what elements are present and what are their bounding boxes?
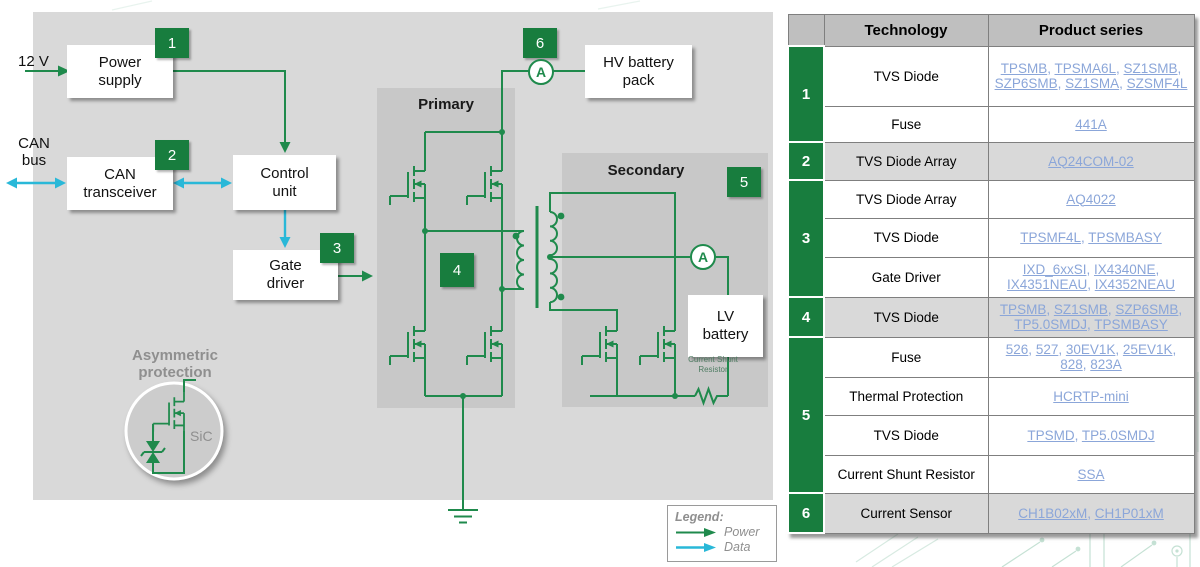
product-link[interactable]: CH1P01xM: [1095, 506, 1164, 521]
corner-header-cell: [788, 15, 824, 47]
product-table: Technology Product series 1TVS DiodeTPSM…: [787, 14, 1195, 534]
product-series-cell: AQ24COM-02: [988, 142, 1194, 180]
product-link[interactable]: TPSMD: [1027, 428, 1074, 443]
product-link[interactable]: IX4351NEAU: [1007, 277, 1087, 292]
can-bus-line: [6, 178, 66, 189]
product-series-cell: SSA: [988, 455, 1194, 493]
product-link[interactable]: SZ1SMB: [1054, 302, 1108, 317]
legend-power-label: Power: [724, 525, 759, 539]
badge-5: 5: [727, 167, 761, 197]
gate-drive-arrow: [338, 271, 373, 282]
technology-header: Technology: [824, 15, 988, 47]
product-series-header: Product series: [988, 15, 1194, 47]
table-row: 5Fuse526, 527, 30EV1K, 25EV1K, 828, 823A: [788, 337, 1194, 377]
table-row: 3TVS Diode ArrayAQ4022: [788, 180, 1194, 218]
hv-battery-box: HV battery pack: [585, 45, 692, 98]
power-line: [173, 71, 291, 153]
product-link[interactable]: 823A: [1090, 357, 1122, 372]
table-row: 1TVS DiodeTPSMB, TPSMA6L, SZ1SMB, SZP6SM…: [788, 46, 1194, 106]
data-arrow-icon: [674, 542, 718, 553]
table-row: TVS DiodeTPSMF4L, TPSMBASY: [788, 218, 1194, 257]
supply-voltage-label: 12 V: [18, 53, 49, 70]
primary-bridge: [390, 132, 502, 523]
product-link[interactable]: SZP6SMB: [995, 76, 1058, 91]
product-link[interactable]: TPSMB: [1000, 302, 1047, 317]
sic-label: SiC: [190, 428, 213, 444]
product-link[interactable]: 25EV1K: [1123, 342, 1173, 357]
product-series-cell: HCRTP-mini: [988, 377, 1194, 415]
product-series-cell: TPSMB, SZ1SMB, SZP6SMB, TP5.0SMDJ, TPSMB…: [988, 297, 1194, 337]
product-link[interactable]: SZ1SMB: [1124, 61, 1178, 76]
product-link[interactable]: CH1B02xM: [1018, 506, 1087, 521]
product-series-cell: TPSMD, TP5.0SMDJ: [988, 415, 1194, 455]
control-unit-box: Control unit: [233, 155, 336, 210]
legend-data-row: Data: [674, 540, 776, 554]
product-series-cell: TPSMB, TPSMA6L, SZ1SMB, SZP6SMB, SZ1SMA,…: [988, 46, 1194, 106]
product-link[interactable]: 828: [1060, 357, 1083, 372]
table-row: 2TVS Diode ArrayAQ24COM-02: [788, 142, 1194, 180]
technology-cell: Fuse: [824, 337, 988, 377]
secondary-label: Secondary: [576, 162, 716, 179]
table-body: 1TVS DiodeTPSMB, TPSMA6L, SZ1SMB, SZP6SM…: [788, 46, 1194, 533]
current-sensor-lv: A: [690, 244, 716, 270]
technology-cell: TVS Diode Array: [824, 142, 988, 180]
product-link[interactable]: IX4352NEAU: [1095, 277, 1175, 292]
badge-2: 2: [155, 140, 189, 170]
legend-power-row: Power: [674, 525, 776, 539]
technology-cell: Current Sensor: [824, 493, 988, 533]
technology-cell: TVS Diode: [824, 415, 988, 455]
current-shunt-label: Current Shunt Resistor: [686, 355, 740, 375]
product-link[interactable]: IXD_6xxSI: [1023, 262, 1087, 277]
badge-6: 6: [523, 28, 557, 58]
table-row: 4TVS DiodeTPSMB, SZ1SMB, SZP6SMB, TP5.0S…: [788, 297, 1194, 337]
technology-cell: TVS Diode Array: [824, 180, 988, 218]
product-link[interactable]: AQ4022: [1066, 192, 1116, 207]
product-series-cell: IXD_6xxSI, IX4340NE, IX4351NEAU, IX4352N…: [988, 257, 1194, 297]
asymmetric-protection-label: Asymmetric protection: [116, 347, 234, 382]
legend-title: Legend:: [675, 510, 776, 524]
page: 12 V CAN bus Power supply CAN transceive…: [0, 0, 1200, 567]
group-number-cell: 6: [788, 493, 824, 533]
product-link[interactable]: TPSMBASY: [1088, 230, 1162, 245]
technology-cell: Thermal Protection: [824, 377, 988, 415]
product-link[interactable]: TP5.0SMDJ: [1082, 428, 1155, 443]
product-link[interactable]: HCRTP-mini: [1053, 389, 1129, 404]
shunt-resistor-symbol: [695, 389, 728, 403]
product-series-cell: CH1B02xM, CH1P01xM: [988, 493, 1194, 533]
product-series-cell: AQ4022: [988, 180, 1194, 218]
product-link[interactable]: 441A: [1075, 117, 1107, 132]
table-row: Thermal ProtectionHCRTP-mini: [788, 377, 1194, 415]
product-link[interactable]: SSA: [1077, 467, 1104, 482]
badge-1: 1: [155, 28, 189, 58]
product-series-cell: TPSMF4L, TPSMBASY: [988, 218, 1194, 257]
legend-data-label: Data: [724, 540, 750, 554]
can-control-line: [173, 178, 232, 189]
power-arrow-icon: [674, 527, 718, 538]
product-link[interactable]: TPSMA6L: [1054, 61, 1116, 76]
table-row: 6Current SensorCH1B02xM, CH1P01xM: [788, 493, 1194, 533]
badge-3: 3: [320, 233, 354, 263]
current-sensor-hv: A: [528, 59, 554, 85]
lv-battery-box: LV battery: [688, 295, 763, 357]
group-number-cell: 2: [788, 142, 824, 180]
group-number-cell: 5: [788, 337, 824, 493]
control-gate-line: [280, 210, 291, 248]
table-row: Current Shunt ResistorSSA: [788, 455, 1194, 493]
product-link[interactable]: 526: [1006, 342, 1029, 357]
can-bus-label: CAN bus: [10, 135, 58, 170]
technology-cell: TVS Diode: [824, 297, 988, 337]
table-header-row: Technology Product series: [788, 15, 1194, 47]
technology-cell: Current Shunt Resistor: [824, 455, 988, 493]
product-link[interactable]: SZP6SMB: [1115, 302, 1178, 317]
technology-cell: Gate Driver: [824, 257, 988, 297]
technology-cell: TVS Diode: [824, 46, 988, 106]
product-link[interactable]: SZ1SMA: [1065, 76, 1119, 91]
table-row: Fuse441A: [788, 106, 1194, 142]
table-row: Gate DriverIXD_6xxSI, IX4340NE, IX4351NE…: [788, 257, 1194, 297]
group-number-cell: 1: [788, 46, 824, 142]
product-link[interactable]: TP5.0SMDJ: [1014, 317, 1087, 332]
product-link[interactable]: 30EV1K: [1066, 342, 1116, 357]
product-link[interactable]: AQ24COM-02: [1048, 154, 1134, 169]
group-number-cell: 3: [788, 180, 824, 297]
product-link[interactable]: IX4340NE: [1094, 262, 1156, 277]
product-series-cell: 441A: [988, 106, 1194, 142]
ground-symbol: [448, 510, 478, 523]
technology-cell: Fuse: [824, 106, 988, 142]
product-link[interactable]: 527: [1036, 342, 1059, 357]
product-link[interactable]: TPSMBASY: [1094, 317, 1168, 332]
badge-4: 4: [440, 253, 474, 287]
primary-label: Primary: [377, 96, 515, 113]
legend-box: Legend: Power Data: [667, 505, 777, 562]
product-series-cell: 526, 527, 30EV1K, 25EV1K, 828, 823A: [988, 337, 1194, 377]
technology-cell: TVS Diode: [824, 218, 988, 257]
product-link[interactable]: TPSMF4L: [1020, 230, 1081, 245]
product-link[interactable]: TPSMB: [1001, 61, 1048, 76]
group-number-cell: 4: [788, 297, 824, 337]
product-link[interactable]: SZSMF4L: [1127, 76, 1188, 91]
table-row: TVS DiodeTPSMD, TP5.0SMDJ: [788, 415, 1194, 455]
